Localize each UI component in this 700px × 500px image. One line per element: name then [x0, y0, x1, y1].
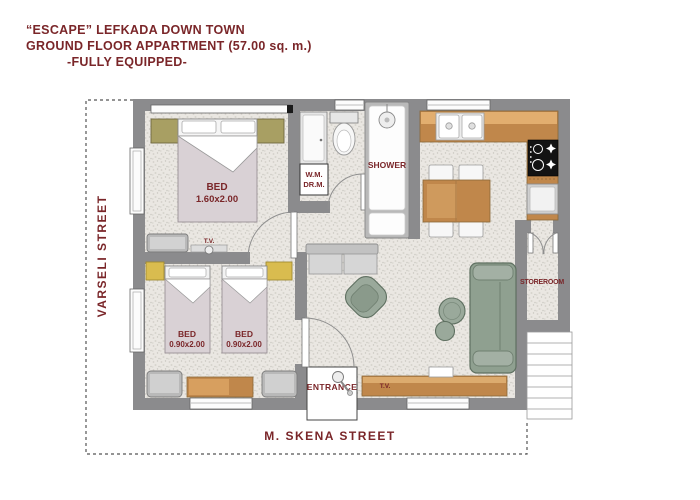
fridge-door [530, 187, 555, 211]
dining-chair [429, 165, 453, 181]
window-bottom-bedroom2 [190, 398, 252, 409]
wall-storeroom-left [515, 220, 527, 332]
bench-cushion [344, 254, 377, 274]
bench-cushion [309, 254, 342, 274]
exterior-stairs [527, 332, 572, 419]
wall-living-right [515, 332, 527, 410]
pillow [226, 268, 263, 277]
nightstand-yellow-right [266, 262, 292, 280]
sofa-armrest-top [473, 265, 513, 280]
door-leaf-master [291, 212, 297, 258]
tv-label-master: T.V. [204, 238, 215, 245]
door-leaf-entrance [302, 318, 309, 367]
pillow [182, 121, 216, 133]
shower-label: SHOWER [368, 160, 406, 170]
nightstand-olive-right [257, 119, 284, 143]
shower-head-center [385, 118, 390, 123]
floor-plan-page: “ESCAPE” LEFKADA DOWN TOWN GROUND FLOOR … [0, 0, 700, 500]
wm-label-1: W.M. [305, 170, 322, 179]
title-line-2: GROUND FLOOR APPARTMENT (57.00 sq. m.) [26, 39, 312, 53]
door-leaf-storeroom-right [553, 233, 558, 253]
dining-chair [459, 221, 483, 237]
tv-label-living: T.V. [380, 383, 391, 390]
wall-storeroom-top-right [553, 220, 570, 233]
wall-bed1-bath [288, 99, 300, 213]
shower-seat [369, 213, 405, 235]
title-line-3: -FULLY EQUIPPED- [67, 55, 187, 69]
pouf-small [436, 322, 455, 341]
dining-chair [459, 165, 483, 181]
window-bottom-living [407, 398, 469, 409]
tv-icon [205, 246, 213, 254]
dresser-wood-grain [189, 379, 229, 395]
wall-storeroom-bottom [515, 320, 570, 332]
nightstand-yellow-left [146, 262, 164, 280]
window-rail-master [151, 105, 291, 113]
street-label-skena: M. SKENA STREET [264, 429, 395, 443]
pillow [169, 268, 206, 277]
bench-right-top [265, 374, 294, 393]
wall-bath-kitchen [408, 99, 420, 239]
door-leaf-storeroom-left [528, 233, 533, 253]
pillow [221, 121, 255, 133]
wm-handle-icon [320, 139, 323, 142]
window-rail-cap [287, 105, 293, 113]
bed-b-label: BED [235, 329, 253, 339]
dining-table-grain [427, 184, 457, 218]
floor-lamp-base [348, 391, 353, 396]
bench-back [306, 244, 378, 254]
tv-set [429, 367, 453, 377]
wm-cabinet-door [303, 115, 324, 161]
stairs-body [527, 332, 572, 419]
nightstand-olive-left [151, 119, 178, 143]
sink-drain-icon [469, 123, 475, 129]
sofa-armrest-bottom [473, 351, 513, 366]
street-label-varseli: VARSELI STREET [95, 195, 109, 318]
pouf-large [439, 298, 465, 324]
window-left-b [130, 289, 144, 352]
toilet-tank [330, 112, 358, 123]
title-line-1: “ESCAPE” LEFKADA DOWN TOWN [26, 23, 245, 37]
window-left-a [130, 148, 144, 214]
bed-a-size: 0.90x2.00 [169, 340, 205, 349]
bed-b-size: 0.90x2.00 [226, 340, 262, 349]
dining-chair [429, 221, 453, 237]
bed-a-label: BED [178, 329, 196, 339]
dresser-master-top [150, 237, 185, 249]
floor-plan-svg: “ESCAPE” LEFKADA DOWN TOWN GROUND FLOOR … [0, 0, 700, 500]
bench-left-top [150, 374, 179, 393]
plan-title: “ESCAPE” LEFKADA DOWN TOWN GROUND FLOOR … [26, 23, 312, 69]
wall-right-upper [558, 99, 570, 232]
wall-bed2-living-a [295, 252, 307, 320]
wm-label-2: DR.M. [303, 180, 324, 189]
sink-drain-icon [446, 123, 452, 129]
cooktop [528, 140, 558, 176]
master-bed-label: BED [206, 182, 227, 193]
wall-bath-bottom [288, 201, 330, 213]
toilet-bowl-inner [337, 130, 351, 152]
floor-lamp-icon [333, 372, 344, 383]
master-bed-size: 1.60x2.00 [196, 194, 238, 205]
storeroom-label: STOREROOM [520, 279, 564, 286]
